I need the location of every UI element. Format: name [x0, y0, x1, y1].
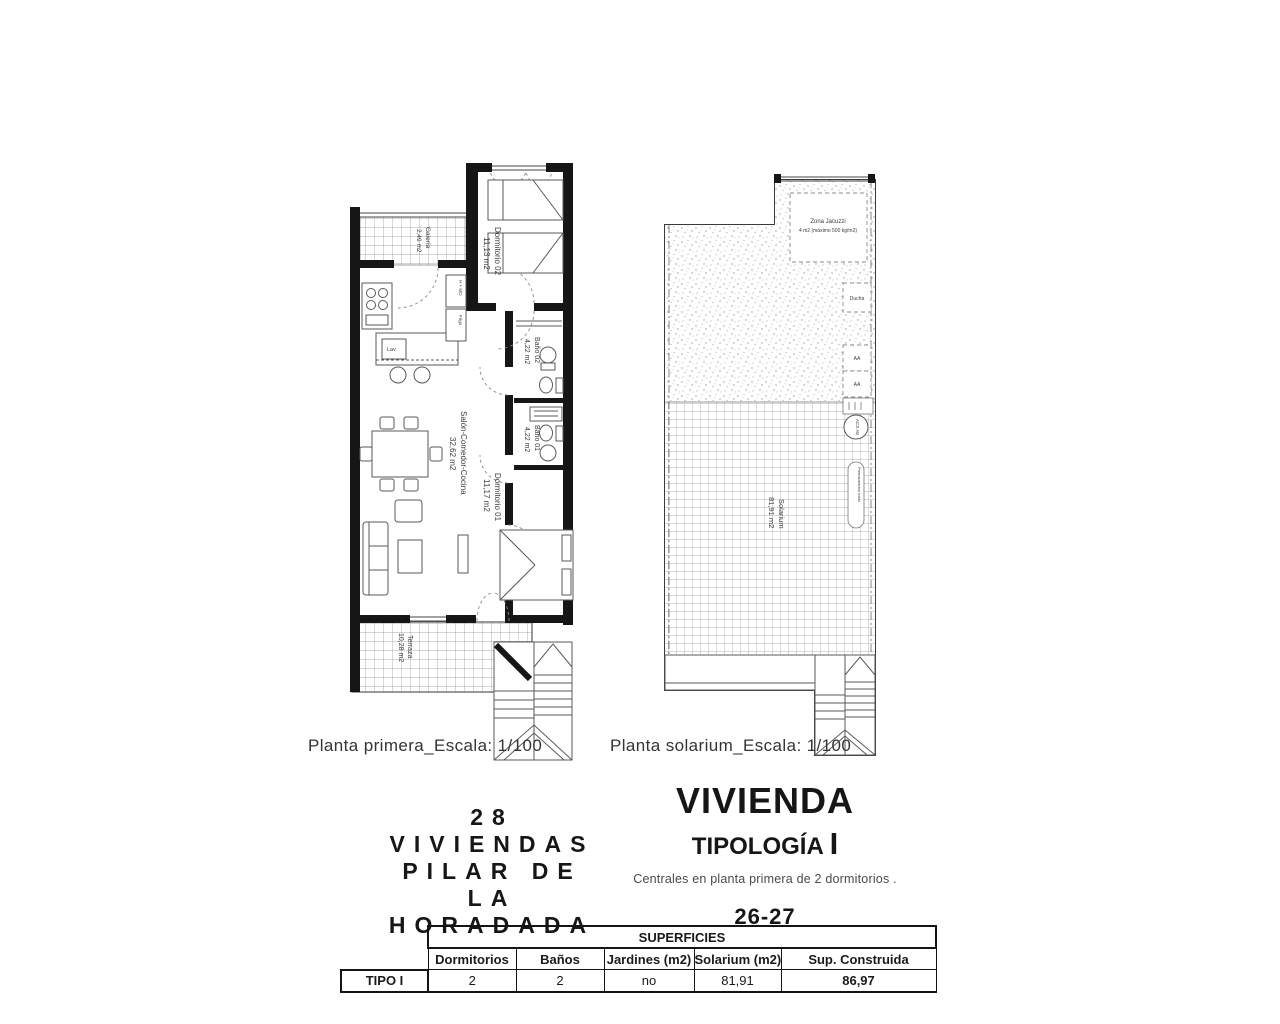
- gallery-area: [360, 217, 466, 265]
- galeria-name: Galería: [424, 227, 431, 249]
- dorm2-name: Dormitorio 02: [493, 227, 502, 276]
- bath1-fixtures: [540, 425, 564, 461]
- bano1-name: Baño 01: [533, 425, 540, 451]
- kitchen-counter: [362, 283, 392, 329]
- vent-box: [843, 398, 873, 414]
- typology-description: Centrales en planta primera de 2 dormito…: [625, 872, 905, 886]
- shower-box: Ducha: [843, 283, 871, 312]
- dorm2-area: 11,13 m2: [482, 237, 491, 270]
- dorm1-name: Dormitorio 01: [493, 473, 502, 522]
- jacuzzi-zone: Zona Jacuzzi 4 m2 (máximo 500 kg/m2): [790, 193, 867, 262]
- ducha-label: Ducha: [850, 296, 865, 302]
- appliance-hmo-label: H + MO: [458, 280, 463, 296]
- typology-title: TIPOLOGÍA I: [625, 826, 905, 862]
- salon-area: 32,62 m2: [448, 437, 457, 471]
- aa-label-2: AA: [854, 382, 861, 388]
- typology-text: TIPOLOGÍA: [692, 833, 823, 860]
- col-sup-construida: Sup. Construida: [781, 948, 936, 970]
- col-solarium: Solarium (m2): [694, 948, 781, 970]
- solarium-name: Solarium: [777, 499, 786, 529]
- plan-sheet: Dormitorio 02 11,13 m2 Galería 2,49 m2 B…: [0, 0, 1280, 1024]
- galeria-area: 2,49 m2: [415, 229, 422, 253]
- ac-units: AA AA: [843, 345, 873, 414]
- table-header-row: Dormitorios Baños Jardines (m2) Solarium…: [341, 948, 936, 970]
- aa-label-1: AA: [854, 356, 861, 362]
- armchair: [395, 500, 422, 522]
- solarium-label: Solarium 81,91 m2: [767, 497, 786, 529]
- solarium-plan: Zona Jacuzzi 4 m2 (máximo 500 kg/m2) Duc…: [652, 155, 887, 775]
- val-solarium: 81,91: [694, 970, 781, 992]
- project-title-line2: PILAR DE LA: [372, 858, 612, 912]
- project-title: 28 VIVIENDAS PILAR DE LA HORADADA: [372, 804, 612, 939]
- val-jardines: no: [604, 970, 694, 992]
- terraza-area: 10,28 m2: [397, 633, 404, 662]
- val-sup-construida: 86,97: [781, 970, 936, 992]
- dwelling-title: VIVIENDA: [625, 780, 905, 822]
- awning-preinstall: Preinstalación toldo: [848, 462, 864, 528]
- tv-unit: [458, 535, 468, 573]
- dining-table: [360, 417, 442, 491]
- col-banos: Baños: [516, 948, 604, 970]
- val-banos: 2: [516, 970, 604, 992]
- appliance-frigo-label: Frigo: [458, 315, 463, 326]
- table-group-row: SUPERFICIES: [341, 926, 936, 948]
- first-floor-caption: Planta primera_Escala: 1/100: [308, 736, 542, 756]
- val-dormitorios: 2: [428, 970, 516, 992]
- solarium-area: 81,91 m2: [767, 497, 776, 528]
- washer-box: [530, 407, 562, 421]
- jacuzzi-label-1: Zona Jacuzzi: [810, 219, 845, 225]
- table-empty-cell: [341, 948, 428, 970]
- row-label-tipo: TIPO I: [341, 970, 428, 992]
- bed-single-1: [488, 180, 563, 220]
- sofa: [363, 522, 388, 595]
- salon-name: Salón-Comedor-Cocina: [459, 411, 468, 495]
- col-dormitorios: Dormitorios: [428, 948, 516, 970]
- appliance-lav-label: Lav: [387, 347, 396, 353]
- tiled-solarium-area: [665, 402, 875, 655]
- table-empty-cell: [341, 926, 428, 948]
- col-jardines: Jardines (m2): [604, 948, 694, 970]
- acs-label: ACS AE: [855, 419, 860, 435]
- typology-block: VIVIENDA TIPOLOGÍA I Centrales en planta…: [625, 780, 905, 930]
- surfaces-table: SUPERFICIES Dormitorios Baños Jardines (…: [340, 925, 937, 993]
- jacuzzi-label-2: 4 m2 (máximo 500 kg/m2): [799, 228, 857, 234]
- table-group-header: SUPERFICIES: [428, 926, 936, 948]
- dorm1-area: 11,17 m2: [482, 479, 491, 512]
- toldo-label: Preinstalación toldo: [857, 467, 862, 503]
- terraza-name: Terraza: [406, 635, 413, 658]
- coffee-table: [398, 540, 422, 573]
- table-data-row: TIPO I 2 2 no 81,91 86,97: [341, 970, 936, 992]
- typology-mark: I: [830, 826, 839, 861]
- bano1-area: 4,22 m2: [523, 427, 530, 452]
- solarium-caption: Planta solarium_Escala: 1/100: [610, 736, 851, 756]
- first-floor-plan: Dormitorio 02 11,13 m2 Galería 2,49 m2 B…: [338, 155, 583, 775]
- bano2-name: Baño 02: [533, 337, 540, 363]
- bed-double: [500, 530, 573, 600]
- project-title-line1: 28 VIVIENDAS: [372, 804, 612, 858]
- bano2-area: 4,22 m2: [523, 339, 530, 364]
- acs-unit: ACS AE: [844, 415, 868, 439]
- lower-walkway: [665, 655, 815, 690]
